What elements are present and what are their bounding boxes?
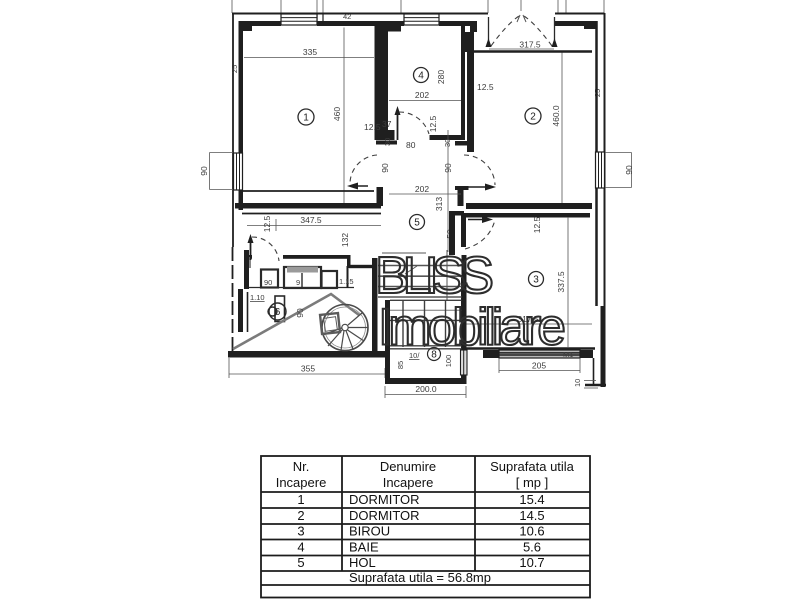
svg-text:25: 25 bbox=[230, 65, 239, 73]
svg-text:280: 280 bbox=[436, 70, 446, 84]
svg-text:1: 1 bbox=[297, 492, 304, 507]
svg-text:12.5: 12.5 bbox=[262, 215, 272, 232]
svg-text:202: 202 bbox=[415, 184, 429, 194]
svg-text:[ mp ]: [ mp ] bbox=[516, 475, 549, 490]
svg-text:355: 355 bbox=[301, 364, 315, 374]
svg-text:12.5: 12.5 bbox=[532, 216, 542, 233]
svg-text:460.0: 460.0 bbox=[551, 105, 561, 127]
svg-text:132: 132 bbox=[340, 233, 350, 247]
svg-text:12.5: 12.5 bbox=[428, 115, 438, 132]
svg-text:1: 1 bbox=[303, 113, 309, 124]
svg-text:12.5: 12.5 bbox=[477, 82, 494, 92]
svg-text:2: 2 bbox=[297, 508, 304, 523]
svg-text:460: 460 bbox=[332, 107, 342, 121]
svg-text:85: 85 bbox=[396, 361, 405, 369]
svg-text:3: 3 bbox=[533, 275, 539, 286]
svg-text:1.15: 1.15 bbox=[339, 277, 354, 286]
svg-text:100: 100 bbox=[444, 355, 453, 368]
svg-text:14.5: 14.5 bbox=[519, 508, 544, 523]
svg-text:30: 30 bbox=[443, 139, 452, 147]
svg-text:1.10: 1.10 bbox=[250, 293, 265, 302]
svg-text:15.4: 15.4 bbox=[519, 492, 544, 507]
svg-text:200.0: 200.0 bbox=[415, 384, 437, 394]
svg-text:42: 42 bbox=[343, 12, 351, 21]
svg-text:37: 37 bbox=[382, 119, 392, 129]
svg-text:Incapere: Incapere bbox=[383, 475, 434, 490]
svg-text:202: 202 bbox=[415, 90, 429, 100]
svg-text:80: 80 bbox=[406, 140, 416, 150]
svg-text:BLISS: BLISS bbox=[375, 247, 494, 305]
svg-text:Nr.: Nr. bbox=[293, 459, 310, 474]
svg-text:DORMITOR: DORMITOR bbox=[349, 492, 420, 507]
svg-text:90: 90 bbox=[199, 166, 209, 176]
svg-text:10.7: 10.7 bbox=[519, 555, 544, 570]
svg-text:317.5: 317.5 bbox=[519, 40, 541, 50]
svg-text:Incapere: Incapere bbox=[276, 475, 327, 490]
svg-text:5: 5 bbox=[414, 218, 420, 229]
svg-text:5: 5 bbox=[297, 555, 304, 570]
svg-text:90: 90 bbox=[624, 165, 634, 175]
svg-text:313: 313 bbox=[434, 197, 444, 211]
svg-text:3: 3 bbox=[297, 524, 304, 539]
svg-text:10: 10 bbox=[573, 379, 582, 387]
svg-text:10.6: 10.6 bbox=[519, 524, 544, 539]
svg-text:9: 9 bbox=[296, 278, 300, 287]
svg-text:90: 90 bbox=[295, 308, 305, 318]
svg-text:347.5: 347.5 bbox=[300, 215, 322, 225]
svg-text:BAIE: BAIE bbox=[349, 540, 379, 555]
svg-text:Denumire: Denumire bbox=[380, 459, 436, 474]
svg-text:2: 2 bbox=[530, 112, 536, 123]
svg-text:4: 4 bbox=[418, 71, 424, 82]
svg-text:Suprafata utila = 56.8mp: Suprafata utila = 56.8mp bbox=[349, 570, 491, 585]
svg-text:335: 335 bbox=[303, 47, 317, 57]
svg-text:HOL: HOL bbox=[349, 555, 376, 570]
svg-text:Suprafata utila: Suprafata utila bbox=[490, 459, 575, 474]
svg-text:337.5: 337.5 bbox=[556, 271, 566, 293]
svg-text:4: 4 bbox=[297, 540, 304, 555]
svg-text:5.6: 5.6 bbox=[523, 540, 541, 555]
svg-text:Imobiliare: Imobiliare bbox=[378, 299, 566, 357]
svg-text:205: 205 bbox=[532, 361, 546, 371]
svg-text:90: 90 bbox=[264, 278, 272, 287]
svg-text:90: 90 bbox=[380, 163, 390, 173]
svg-text:DORMITOR: DORMITOR bbox=[349, 508, 420, 523]
svg-text:BIROU: BIROU bbox=[349, 524, 390, 539]
svg-text:30: 30 bbox=[383, 138, 392, 146]
